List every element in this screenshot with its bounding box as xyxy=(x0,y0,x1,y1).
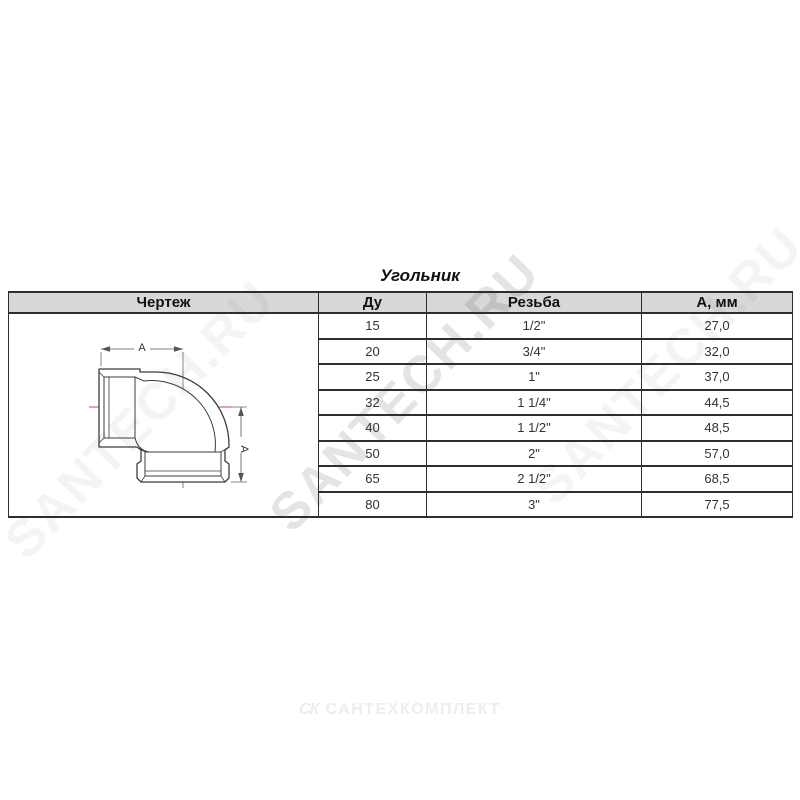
cell-a-mm: 68,5 xyxy=(642,466,793,492)
cell-du: 40 xyxy=(319,415,427,441)
cell-a-mm: 37,0 xyxy=(642,364,793,390)
cell-a-mm: 48,5 xyxy=(642,415,793,441)
cell-du: 65 xyxy=(319,466,427,492)
cell-a-mm: 27,0 xyxy=(642,313,793,339)
cell-a-mm: 57,0 xyxy=(642,441,793,467)
cell-thread: 1" xyxy=(427,364,642,390)
table-header-row: Чертеж Ду Резьба А, мм xyxy=(9,292,793,313)
column-header-thread: Резьба xyxy=(427,292,642,313)
cell-thread: 3/4" xyxy=(427,339,642,365)
elbow-drawing-cell: A A xyxy=(9,313,319,517)
cell-du: 15 xyxy=(319,313,427,339)
column-header-a-mm: А, мм xyxy=(642,292,793,313)
cell-a-mm: 32,0 xyxy=(642,339,793,365)
spec-table: Чертеж Ду Резьба А, мм xyxy=(8,291,793,518)
cell-thread: 2" xyxy=(427,441,642,467)
elbow-outline xyxy=(99,369,229,482)
cell-a-mm: 44,5 xyxy=(642,390,793,416)
elbow-drawing: A A xyxy=(83,335,258,495)
column-header-du: Ду xyxy=(319,292,427,313)
cell-thread: 3" xyxy=(427,492,642,518)
dimension-a-right-label: A xyxy=(238,445,250,453)
cell-du: 32 xyxy=(319,390,427,416)
cell-thread: 1 1/2" xyxy=(427,415,642,441)
table-row: A A 15 1/2" 27,0 xyxy=(9,313,793,339)
santehkomplekt-logo-icon: СК xyxy=(297,701,321,719)
cell-du: 20 xyxy=(319,339,427,365)
cell-thread: 1 1/4" xyxy=(427,390,642,416)
column-header-drawing: Чертеж xyxy=(9,292,319,313)
footer-brand-text: САНТЕХКОМПЛЕКТ xyxy=(326,701,501,718)
cell-thread: 2 1/2" xyxy=(427,466,642,492)
page-title: Угольник xyxy=(40,266,800,286)
dimension-a-top-label: A xyxy=(138,342,146,354)
cell-thread: 1/2" xyxy=(427,313,642,339)
cell-du: 80 xyxy=(319,492,427,518)
footer-brand: СКСАНТЕХКОМПЛЕКТ xyxy=(0,701,800,719)
cell-du: 25 xyxy=(319,364,427,390)
cell-du: 50 xyxy=(319,441,427,467)
cell-a-mm: 77,5 xyxy=(642,492,793,518)
